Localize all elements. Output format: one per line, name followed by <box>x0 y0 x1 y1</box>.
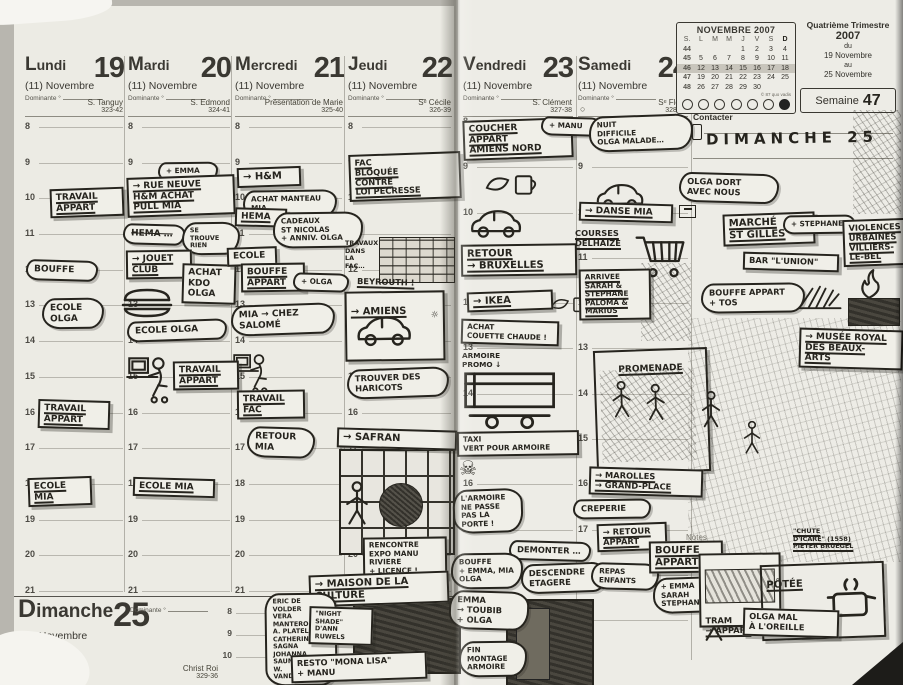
hour-row: 8 <box>128 127 231 163</box>
hour-label: 14 <box>578 388 588 398</box>
calendar-day: 7 <box>722 54 736 64</box>
hour-label: 17 <box>128 442 138 452</box>
note-hema-cancelled: HEMA … <box>123 223 186 245</box>
hour-line <box>249 163 342 164</box>
hour-line <box>142 127 230 128</box>
weekday-marker <box>682 99 693 110</box>
saint-name: Sᵉ Cécile <box>418 98 451 107</box>
day-title-row: Dimanche25 <box>18 600 136 630</box>
burning-car-sketch <box>848 298 900 326</box>
hour-label: 20 <box>235 549 245 559</box>
hour-line <box>142 448 230 449</box>
hour-line <box>249 555 342 556</box>
hour-line <box>39 163 123 164</box>
mini-calendar: NOVEMBRE 2007 S.LMMJVSD 4412344556789101… <box>676 22 796 114</box>
hour-label: 21 <box>25 585 35 595</box>
week-label: Semaine <box>815 95 858 107</box>
hour-label: 8 <box>348 121 353 131</box>
hour-label: 16 <box>128 407 138 417</box>
hour-label: 17 <box>25 442 35 452</box>
dominante-label: Dominante ° <box>25 95 61 102</box>
hour-row: 8 <box>235 127 343 163</box>
day-number: 21 <box>314 56 344 80</box>
hour-label: 19 <box>235 514 245 524</box>
note-danse-mia: → DANSE MIA <box>579 202 673 223</box>
calendar-body: 4412344556789101146121314151617184719202… <box>677 45 795 93</box>
trimester-info: Quatrième Trimestre 2007 du 19 Novembre … <box>797 20 899 80</box>
hour-line <box>39 520 123 521</box>
note-chute-d-icare-bruegel: "CHUTE D'ICARE" (1558) PIETER BRUEGEL <box>793 528 885 551</box>
hour-row: 19 <box>128 520 231 556</box>
day-header-lundi: Lundi19 (11) Novembre Dominante ° S. Tan… <box>25 56 124 117</box>
hour-label: 19 <box>25 514 35 524</box>
calendar-day: 1 <box>736 45 750 55</box>
day-of-year-ref: 327-38 <box>532 107 572 115</box>
calendar-col-header: M <box>708 35 722 45</box>
saint-name: Présentation de Marie <box>265 98 343 107</box>
saint-label: Christ Roi329-36 <box>183 664 218 681</box>
note-olga-mal-oreille: OLGA MAL À L'OREILLE <box>743 608 840 638</box>
calendar-day: 28 <box>722 83 736 93</box>
calendar-day: 17 <box>764 64 778 74</box>
note-rue-neuve-hm: → RUE NEUVE H&M ACHAT PULL MIA <box>126 174 235 218</box>
hour-label: 10 <box>218 650 232 660</box>
hour-label: 21 <box>128 585 138 595</box>
day-name: Vendredi <box>463 56 526 74</box>
hour-label: 8 <box>218 606 232 616</box>
calendar-day: 6 <box>708 54 722 64</box>
hour-label: 9 <box>235 157 240 167</box>
hour-line <box>249 484 342 485</box>
note-emma-toubib: EMMA → TOUBIB + OLGA <box>448 590 529 632</box>
saint-name: S. Edmond <box>190 98 230 107</box>
hour-row: 14 <box>25 341 124 377</box>
note-arrivee-sarah-stephane: ARRIVEE SARAH & STEPHANE PALOMA & MARIUS <box>579 268 652 320</box>
day-title-row: Jeudi22 <box>348 56 452 80</box>
hour-line <box>142 413 230 414</box>
hour-row: 19 <box>578 620 689 665</box>
hour-label: 13 <box>578 342 588 352</box>
car-sketch-vendredi <box>467 207 525 239</box>
hour-line <box>39 591 123 592</box>
dominante-line <box>168 606 208 612</box>
flatpack-wardrobe-trolley-sketch <box>459 367 569 429</box>
saint-name: S. Tanguy <box>88 98 123 107</box>
calendar-week-row: 4719202122232425 <box>677 73 795 83</box>
note-taxi-vert: TAXI VERT POUR ARMOIRE <box>457 430 579 457</box>
calendar-day: 23 <box>750 73 764 83</box>
calendar-day: 4 <box>778 45 792 55</box>
note-retour-mia: RETOUR MIA <box>247 426 316 459</box>
note-achat-kdo-olga: ACHAT KDO OLGA <box>181 263 236 304</box>
hour-label: 14 <box>235 335 245 345</box>
day-header-samedi: Samedi24 (11) Novembre Dominante ° ○ Sᵉ … <box>578 56 688 117</box>
hour-label: 9 <box>218 628 232 638</box>
day-name: Mardi <box>128 56 170 74</box>
scan-edge-shadow <box>895 0 903 685</box>
promenade-people-sketch <box>600 368 697 463</box>
calendar-day: 8 <box>736 54 750 64</box>
note-beyrouth: BEYROUTH ! <box>357 277 431 289</box>
saint-label: Sᵉ Cécile326-39 <box>418 98 451 115</box>
calendar-day: 14 <box>722 64 736 74</box>
day-number: 19 <box>94 56 124 80</box>
sun-icon: ☼ <box>431 310 439 321</box>
trimester-year: 2007 <box>797 30 899 42</box>
week-number: 47 <box>863 92 881 110</box>
day-title-row: Vendredi23 <box>463 56 573 80</box>
calendar-day: 10 <box>764 54 778 64</box>
note-travail-appart: TRAVAIL APPART <box>38 399 111 430</box>
note-dimanche-25: DIMANCHE 25 <box>706 128 896 149</box>
calendar-title: NOVEMBRE 2007 <box>677 25 795 35</box>
note-demonter: DEMONTER … <box>509 540 592 562</box>
hour-line <box>477 348 573 349</box>
hamburger-sketch <box>118 286 176 318</box>
breakfast-sketch <box>483 167 541 201</box>
calendar-day: 29 <box>736 83 750 93</box>
calendar-day <box>694 45 708 55</box>
day-of-year-ref: 326-39 <box>418 107 451 115</box>
calendar-day: 11 <box>778 54 792 64</box>
calendar-day: 21 <box>722 73 736 83</box>
fire-sketch <box>856 268 882 300</box>
note-hm: → H&M <box>237 166 302 188</box>
hour-line <box>39 234 123 235</box>
calendar-day <box>722 45 736 55</box>
week-number: 44 <box>680 45 694 55</box>
day-of-year-ref: 323-42 <box>88 107 123 115</box>
dominante-label: Dominante ° <box>130 606 208 614</box>
calendar-day: 24 <box>764 73 778 83</box>
note-retour-bruxelles: RETOUR → BRUXELLES <box>461 243 577 276</box>
hour-line <box>249 127 342 128</box>
note-ecole-mia: ECOLE MIA <box>133 477 215 498</box>
week-number: 48 <box>680 83 694 93</box>
note-achat-couette: ACHAT COUETTE CHAUDE ! <box>461 319 560 347</box>
day-number: 22 <box>422 56 452 80</box>
note-trouver-haricots: TROUVER DES HARICOTS <box>347 366 450 399</box>
note-resto-mona-lisa: RESTO "MONA LISA" + MANU <box>291 651 428 683</box>
day-header-mercredi: Mercredi21 (11) Novembre Dominante ° Pré… <box>235 56 344 117</box>
calendar-week-row: 441234 <box>677 45 795 55</box>
hour-line <box>362 413 451 414</box>
week-number: 47 <box>680 73 694 83</box>
note-nuit-difficile: NUIT DIFFICILE OLGA MALADE… <box>588 113 693 152</box>
hour-line <box>477 484 573 485</box>
hour-row: 20 <box>128 555 231 591</box>
calendar-day <box>708 45 722 55</box>
printer-icon <box>679 205 696 218</box>
calendar-copyright: © 87 quo vadis <box>677 92 795 98</box>
calendar-col-header: D <box>778 35 792 45</box>
hour-line <box>39 448 123 449</box>
hour-line <box>142 591 230 592</box>
weekday-markers <box>677 99 795 110</box>
day-title-row: Samedi24 <box>578 56 688 80</box>
dominante-label: Dominante ° <box>578 95 614 102</box>
note-musee-royal-beaux-arts: → MUSÉE ROYAL DES BEAUX- ARTS <box>798 328 903 371</box>
hour-label: 13 <box>25 299 35 309</box>
note-promenade: PROMENADE <box>593 347 711 475</box>
day-of-year-ref: 324-41 <box>190 107 230 115</box>
hour-line <box>362 234 451 235</box>
note-ecole-olga: ECOLE OLGA <box>127 318 228 342</box>
note-bouffe: BOUFFE <box>26 259 99 282</box>
week-number: 45 <box>680 54 694 64</box>
trimester-from: 19 Novembre <box>797 51 899 61</box>
calendar-day: 2 <box>750 45 764 55</box>
note-armoire-promo: ARMOIRE PROMO ↓ <box>462 352 514 369</box>
note-creperie: CREPERIE <box>573 498 651 519</box>
saint-label: S. Clément327-38 <box>532 98 572 115</box>
calendar-col-header: J <box>736 35 750 45</box>
day-of-year-ref: 325-40 <box>265 107 343 115</box>
hour-row: 18 <box>235 484 343 520</box>
hour-row: 19 <box>235 520 343 556</box>
day-header-jeudi: Jeudi22 (11) Novembre Dominante ° Sᵉ Céc… <box>348 56 452 117</box>
day-title-row: Mardi20 <box>128 56 231 80</box>
note-ecole-mia: ECOLE MIA <box>28 476 93 507</box>
phone-icon <box>692 124 702 140</box>
hour-label: 21 <box>235 585 245 595</box>
hour-line <box>142 520 230 521</box>
day-number: 20 <box>201 56 231 80</box>
hour-label: 20 <box>25 549 35 559</box>
calendar-day <box>778 83 792 93</box>
note-ecole-olga: ECOLE OLGA <box>42 298 104 330</box>
calendar-week-row: 4612131415161718 <box>677 64 795 74</box>
hour-line <box>142 555 230 556</box>
note-olga-dort-avec-nous: OLGA DORT AVEC NOUS <box>679 172 780 204</box>
calendar-header-row: S.LMMJVSD <box>677 35 795 45</box>
day-header-mardi: Mardi20 (11) Novembre Dominante ° S. Edm… <box>128 56 231 117</box>
hour-row: 10 <box>348 198 452 234</box>
note-amiens-trip: → AMIENS ☼ <box>345 290 446 361</box>
hour-label: 15 <box>578 433 588 443</box>
calendar-col-header: V <box>750 35 764 45</box>
week-number: 46 <box>680 64 694 74</box>
hour-label: 9 <box>578 161 583 171</box>
calendar-day: 20 <box>708 73 722 83</box>
day-name: Samedi <box>578 56 631 74</box>
hour-row: 16 <box>128 413 231 449</box>
hour-label: 10 <box>25 192 35 202</box>
moon-phase-icon: ○ <box>580 104 585 114</box>
calendar-day: 22 <box>736 73 750 83</box>
day-header-vendredi: Vendredi23 (11) Novembre Dominante ° S. … <box>463 56 573 117</box>
dominante-label: Dominante ° <box>128 95 164 102</box>
day-number: 23 <box>543 56 573 80</box>
calendar-day: 30 <box>750 83 764 93</box>
saint-label: S. Edmond324-41 <box>190 98 230 115</box>
hour-label: 11 <box>578 252 588 262</box>
note-bar-l-union: BAR "L'UNION" <box>743 252 839 272</box>
hour-label: 14 <box>25 335 35 345</box>
calendar-day: 19 <box>694 73 708 83</box>
note-safran: → SAFRAN <box>337 427 458 450</box>
hour-line <box>592 167 688 168</box>
note-mia-chez-salome: MIA → CHEZ SALOMÉ <box>230 302 335 337</box>
calendar-week-row: 45567891011 <box>677 54 795 64</box>
day-name: Mercredi <box>235 56 298 74</box>
hour-label: 17 <box>235 442 245 452</box>
hour-label: 17 <box>578 524 588 534</box>
note-marolles-grand-place: → MAROLLES → GRAND-PLACE <box>589 466 704 497</box>
hour-line <box>249 341 342 342</box>
calendar-day: 16 <box>750 64 764 74</box>
car-sketch-amiens <box>353 313 415 348</box>
day-of-year-ref: 329-36 <box>183 673 218 681</box>
day-name: Lundi <box>25 56 66 74</box>
day-name: Dimanche <box>18 600 113 621</box>
artwork-sketch <box>379 483 423 527</box>
note-plus-olga: + OLGA <box>293 272 349 292</box>
hour-line <box>249 520 342 521</box>
weekday-marker <box>779 99 790 110</box>
note-travail-appart: TRAVAIL APPART <box>50 187 125 219</box>
saint-name: Christ Roi <box>183 664 218 673</box>
hour-label: 16 <box>578 478 588 488</box>
calendar-day: 26 <box>694 83 708 93</box>
trimester-du: du <box>797 42 899 51</box>
hour-label: 9 <box>463 161 468 171</box>
hour-label: 8 <box>25 121 30 131</box>
calendar-col-header: S. <box>680 35 694 45</box>
hour-line <box>362 127 451 128</box>
hour-line <box>39 555 123 556</box>
day-name: Jeudi <box>348 56 387 74</box>
hour-label: 18 <box>235 478 245 488</box>
trimester-title: Quatrième Trimestre <box>797 20 899 30</box>
hour-row: 19 <box>25 520 124 556</box>
calendar-col-header: L <box>694 35 708 45</box>
calendar-day: 25 <box>778 73 792 83</box>
hour-label: 16 <box>25 407 35 417</box>
hour-label: 19 <box>128 514 138 524</box>
calendar-day: 9 <box>750 54 764 64</box>
saint-label: Présentation de Marie325-40 <box>265 98 343 115</box>
note-fac-bloquee: FAC BLOQUÉE CONTRE LOI PECRESSE <box>348 151 462 202</box>
hour-line <box>39 377 123 378</box>
note-bouffe-emma-mia-olga: BOUFFE + EMMA, MIA OLGA <box>451 552 523 589</box>
weekday-marker <box>698 99 709 110</box>
note-violences-urbaines: VIOLENCES URBAINES VILLIERS- LE-BEL <box>842 218 903 267</box>
hour-label: 8 <box>128 121 133 131</box>
note-ikea: → IKEA <box>467 290 554 313</box>
day-title-row: Mercredi21 <box>235 56 344 80</box>
calendar-day: 15 <box>736 64 750 74</box>
saint-name: S. Clément <box>532 98 572 107</box>
calendar-day: 13 <box>708 64 722 74</box>
calendar-col-header: M <box>722 35 736 45</box>
person-at-computer-sketch <box>126 350 172 404</box>
hour-label: 8 <box>235 121 240 131</box>
dominante-line <box>616 94 656 100</box>
column-separator <box>124 56 125 592</box>
visitor-sketch <box>344 462 370 546</box>
museum-building-sketch <box>853 110 901 214</box>
walker-sketch <box>742 420 762 456</box>
note-travail-appart: TRAVAIL APPART <box>173 361 239 391</box>
calendar-day: 12 <box>694 64 708 74</box>
calendar-week-row: 482627282930 <box>677 83 795 93</box>
hour-label: 15 <box>25 371 35 381</box>
calendar-day: 5 <box>694 54 708 64</box>
saint-label: S. Tanguy323-42 <box>88 98 123 115</box>
agenda-scan: Lundi19 (11) Novembre Dominante ° S. Tan… <box>0 0 903 685</box>
skull-icon: ☠ <box>459 456 477 480</box>
day-title-row: Lundi19 <box>25 56 124 80</box>
weekday-marker <box>731 99 742 110</box>
calendar-day <box>764 83 778 93</box>
note-travaux-fac: TRAVAUX DANS LA FAC… <box>345 240 379 270</box>
trimester-to: 25 Novembre <box>797 70 899 80</box>
note-night-shade: "NIGHT SHADE" D'ANN RUWELS <box>308 606 373 646</box>
weekday-marker <box>747 99 758 110</box>
calendar-day: 3 <box>764 45 778 55</box>
weekday-marker <box>763 99 774 110</box>
hour-line <box>39 341 123 342</box>
calendar-day: 27 <box>708 83 722 93</box>
note-fin-montage-armoire: FIN MONTAGE ARMOIRE <box>459 641 527 678</box>
hour-label: 11 <box>25 228 35 238</box>
dominante-label: Dominante ° <box>348 95 384 102</box>
hour-label: 9 <box>25 157 30 167</box>
trimester-au: au <box>797 61 899 70</box>
dominante-label: Dominante ° <box>463 95 499 102</box>
calendar-day: 18 <box>778 64 792 74</box>
hour-label: 20 <box>128 549 138 559</box>
hour-label: 9 <box>128 157 133 167</box>
hour-line <box>39 127 123 128</box>
hour-row: 8 <box>25 127 124 163</box>
hour-row: 20 <box>25 555 124 591</box>
weekday-marker <box>714 99 725 110</box>
hour-line <box>592 620 688 621</box>
calendar-col-header: S <box>764 35 778 45</box>
note-armoire-ne-passe-pas: L'ARMOIRE NE PASSE PAS LA PORTE ! <box>452 488 524 535</box>
note-bouffe-appart-tos: BOUFFE APPART + TOS <box>701 282 805 313</box>
day-number: 25 <box>113 600 149 630</box>
note-travail-fac: TRAVAIL FAC <box>237 390 305 420</box>
hour-label: 16 <box>348 407 358 417</box>
note-courses-delhaize: COURSES DELHAIZE <box>575 229 631 249</box>
